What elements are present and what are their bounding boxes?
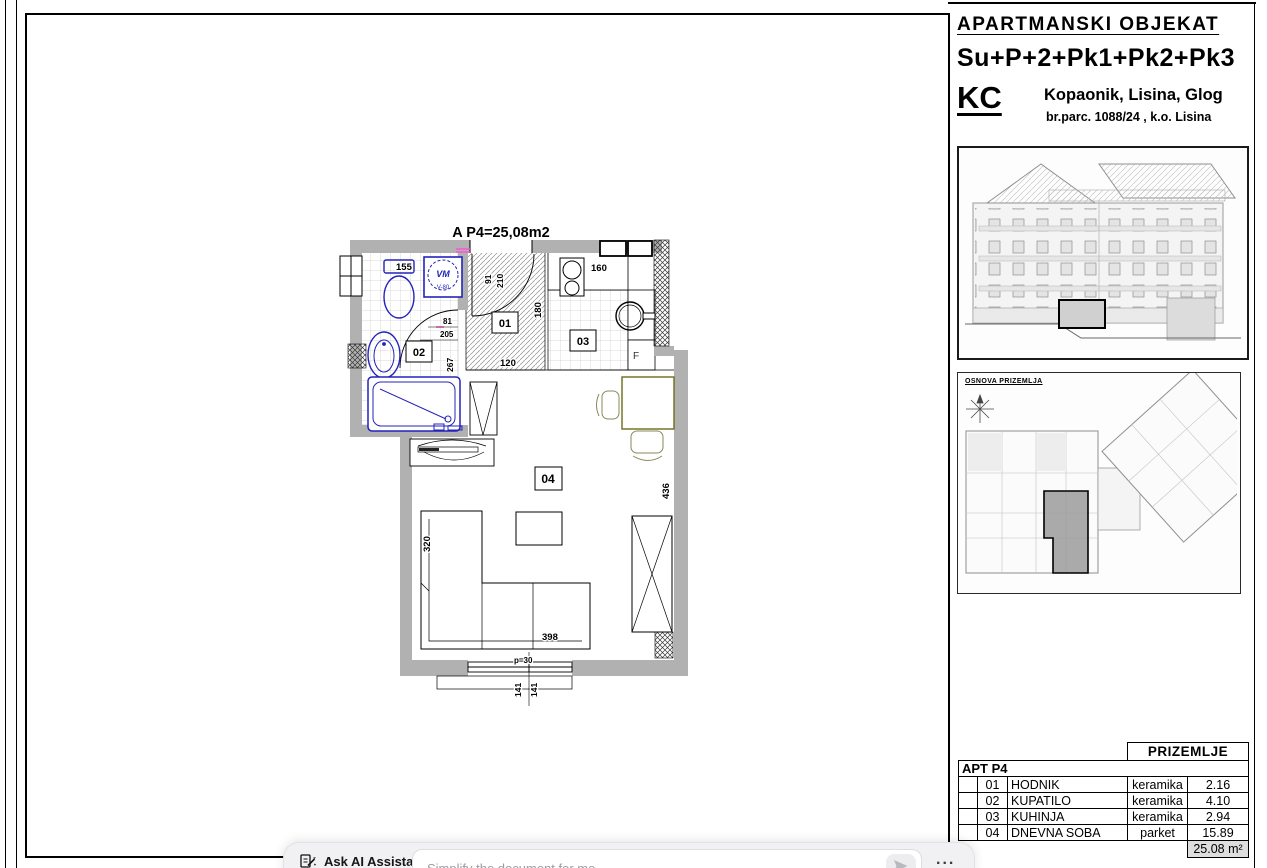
cooktop	[560, 258, 584, 296]
dim-81: 81	[443, 317, 452, 326]
row-material: parket	[1128, 825, 1188, 841]
row-name: KUHINJA	[1008, 809, 1128, 825]
room-label-bath: 02	[413, 347, 425, 359]
row-area: 15.89	[1188, 825, 1249, 841]
sheet-edge-line-right	[1254, 2, 1255, 868]
dim-155: 155	[396, 262, 413, 273]
wardrobe	[632, 516, 672, 632]
drawing-sheet-page: A P4=25,08m2	[0, 0, 1267, 868]
area-table: PRIZEMLJE APT P4 01 HODNIK keramika 2.16…	[958, 742, 1249, 858]
row-material: keramika	[1128, 809, 1188, 825]
table-row: 01 HODNIK keramika 2.16	[959, 777, 1249, 793]
tv-stand	[410, 439, 494, 466]
project-floors: Su+P+2+Pk1+Pk2+Pk3	[957, 44, 1257, 73]
bath-window	[340, 256, 362, 296]
dim-180: 180	[533, 302, 544, 318]
table-row: 03 KUHINJA keramika 2.94	[959, 809, 1249, 825]
dim-267: 267	[445, 358, 455, 372]
key-plan-drawing	[958, 373, 1237, 590]
ai-send-button[interactable]	[886, 854, 916, 868]
project-title: APARTMANSKI OBJEKAT	[957, 14, 1257, 36]
table-row: 04 DNEVNA SOBA parket 15.89	[959, 825, 1249, 841]
row-name: KUPATILO	[1008, 793, 1128, 809]
room-label-living: 04	[541, 472, 555, 486]
sheet-edge-line-inner	[16, 0, 17, 868]
washing-machine-label: VM	[436, 269, 450, 279]
room-label-hall: 01	[499, 318, 511, 330]
row-num: 03	[978, 809, 1008, 825]
elevation-thumbnail	[957, 146, 1249, 360]
key-plan-label: OSNOVA PRIZEMLJA	[965, 378, 1043, 385]
dim-120: 120	[500, 358, 516, 369]
row-num: 04	[978, 825, 1008, 841]
dim-320: 320	[422, 536, 433, 552]
dim-210: 210	[495, 274, 505, 288]
plan-title: A P4=25,08m2	[452, 225, 549, 241]
dining-set	[597, 377, 675, 461]
dim-436: 436	[661, 483, 672, 499]
kitchen-wall-cabinets	[600, 241, 652, 256]
paper-plane-icon	[893, 859, 909, 868]
sheet-edge-line-outer	[5, 0, 6, 868]
dim-p30: p=30	[514, 656, 533, 665]
row-area: 4.10	[1188, 793, 1249, 809]
dim-205: 205	[440, 330, 454, 339]
dim-91: 91	[483, 274, 493, 284]
row-area: 2.94	[1188, 809, 1249, 825]
ai-bar-menu-ellipsis[interactable]: ...	[936, 851, 955, 868]
project-location: Kopaonik, Lisina, Glog	[1044, 86, 1267, 105]
ai-assistant-label: Ask AI Assistant	[324, 854, 426, 868]
fridge-label: F	[633, 351, 639, 362]
dim-160: 160	[591, 263, 607, 274]
table-row: 02 KUPATILO keramika 4.10	[959, 793, 1249, 809]
sheet-top-line	[948, 2, 1256, 4]
ai-assistant-bar: Ask AI Assistant ...	[283, 842, 975, 868]
bathtub	[368, 377, 462, 431]
compass-icon	[966, 395, 994, 423]
key-plan-thumbnail: OSNOVA PRIZEMLJA	[957, 372, 1241, 594]
corner-sofa	[421, 511, 590, 649]
room-label-kitchen: 03	[577, 336, 589, 348]
table-total-area: 25.08 m²	[1188, 841, 1249, 858]
row-num: 01	[978, 777, 1008, 793]
elevation-drawing	[959, 148, 1243, 354]
project-parcel: br.parc. 1088/24 , k.o. Lisina	[1046, 110, 1267, 124]
ai-prompt-input[interactable]	[425, 854, 859, 868]
washing-machine-code: V-80	[437, 285, 450, 291]
table-apartment-label: APT P4	[959, 761, 1249, 777]
dim-398: 398	[542, 632, 558, 643]
table-header-prizemlje: PRIZEMLJE	[1128, 743, 1249, 761]
row-name: DNEVNA SOBA	[1008, 825, 1128, 841]
floor-plan: A P4=25,08m2	[330, 218, 702, 718]
unit-highlight-box	[1059, 300, 1105, 328]
row-area: 2.16	[1188, 777, 1249, 793]
row-name: HODNIK	[1008, 777, 1128, 793]
dim-141-left: 141	[513, 683, 523, 697]
table-total-spacer	[959, 841, 1188, 858]
coffee-table	[516, 512, 562, 545]
ai-input-wrapper	[412, 849, 922, 868]
dim-141-right: 141	[529, 683, 539, 697]
shaft-cabinet	[470, 382, 497, 435]
row-material: keramika	[1128, 777, 1188, 793]
washing-machine: VM V-80	[424, 257, 462, 297]
ai-assistant-icon	[299, 852, 317, 868]
row-material: keramika	[1128, 793, 1188, 809]
row-num: 02	[978, 793, 1008, 809]
